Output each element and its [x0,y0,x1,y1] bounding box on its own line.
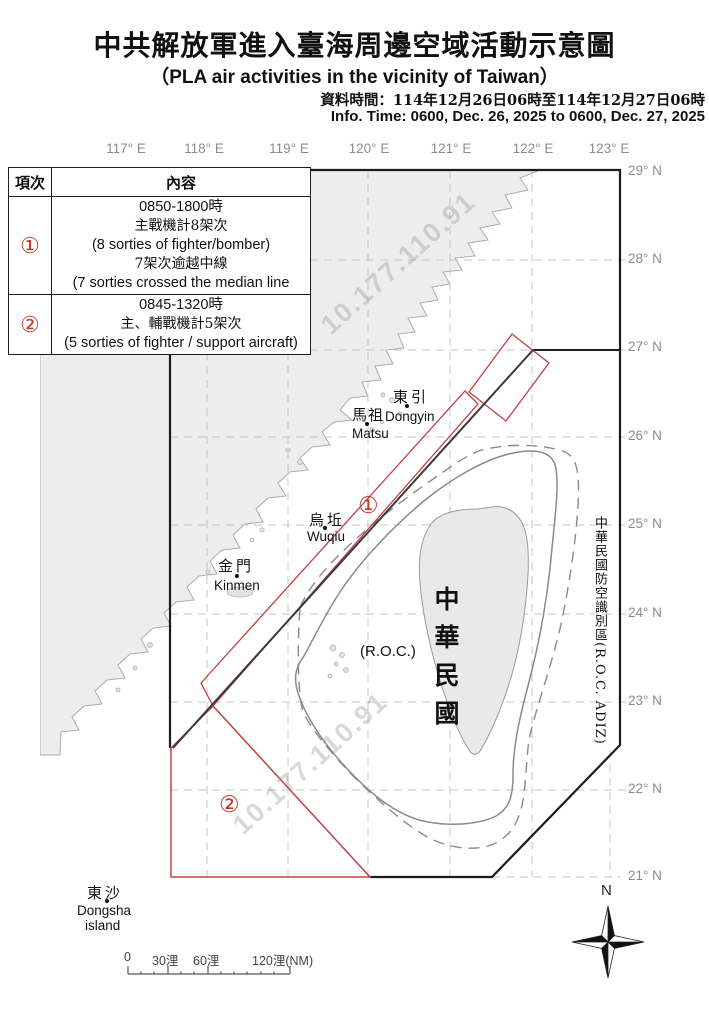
place-label-dongyin-en: Dongyin [385,409,435,424]
lat-label: 23° N [628,693,662,708]
info-time-en: Info. Time: 0600, Dec. 26, 2025 to 0600,… [331,108,705,125]
row-line: (8 sorties of fighter/bomber) [54,236,308,255]
row-line: 主戰機計8架次 [54,217,308,236]
lat-label: 24° N [628,605,662,620]
table-row: ② 0845-1320時 主、輔戰機計5架次 (5 sorties of fig… [9,295,311,355]
col-header-item: 項次 [9,168,52,197]
roc-label-en: (R.O.C.) [360,643,416,660]
zone-2-number: ② [9,295,52,355]
place-label-wuqiu-en: Wuqiu [307,529,345,544]
lon-label: 117° E [100,141,152,156]
lat-label: 21° N [628,868,662,883]
lat-label: 28° N [628,251,662,266]
zone-1-content: 0850-1800時 主戰機計8架次 (8 sorties of fighter… [52,197,311,295]
place-label-dongyin-zh: 東引 [393,386,429,407]
compass-north-label: N [601,882,612,899]
scale-tick-label: 0 [124,950,131,964]
adiz-label: 中華民國防空識別區(R.O.C. ADIZ) [590,516,609,761]
row-line: 0850-1800時 [54,198,308,217]
row-line: 0845-1320時 [54,296,308,315]
zone-2-content: 0845-1320時 主、輔戰機計5架次 (5 sorties of fight… [52,295,311,355]
place-label-matsu-zh: 馬祖 [352,404,384,425]
lon-label: 119° E [263,141,315,156]
place-label-matsu-en: Matsu [352,426,389,441]
zone-2-marker: ② [219,793,240,816]
col-header-content: 內容 [52,168,311,197]
lat-label: 25° N [628,516,662,531]
table-row: ① 0850-1800時 主戰機計8架次 (8 sorties of fight… [9,197,311,295]
info-time-zh: 資料時間：114年12月26日06時至114年12月27日06時 [320,89,705,110]
lon-label: 120° E [343,141,395,156]
lat-label: 29° N [628,163,662,178]
page-subtitle: （PLA air activities in the vicinity of T… [0,62,709,89]
lon-label: 122° E [507,141,559,156]
sortie-table: 項次 內容 ① 0850-1800時 主戰機計8架次 (8 sorties of… [8,167,311,355]
zone-1-marker: ① [358,494,379,517]
page: 10.177.110.91 10.177.110.91 中共解放軍進入臺海周邊空… [0,0,709,1024]
place-label-dongsha-en: Dongsha [77,903,131,918]
lon-label: 118° E [178,141,230,156]
compass-rose [572,906,644,978]
lat-label: 26° N [628,428,662,443]
roc-label-zh: 中華民國 [427,586,463,738]
place-label-dongsha-island: island [85,918,120,933]
row-line: (7 sorties crossed the median line [54,274,308,293]
place-label-wuqiu-zh: 烏坵 [309,509,345,530]
place-label-dongsha-zh: 東沙 [87,882,123,903]
row-line: 主、輔戰機計5架次 [54,315,308,334]
page-title: 中共解放軍進入臺海周邊空域活動示意圖 [0,24,709,64]
lon-label: 121° E [425,141,477,156]
row-line: 7架次逾越中線 [54,255,308,274]
lon-label: 123° E [583,141,635,156]
row-line: (5 sorties of fighter / support aircraft… [54,334,308,353]
scale-tick-label: 30浬 [152,950,178,969]
zone-1-number: ① [9,197,52,295]
place-label-kinmen-en: Kinmen [214,578,260,593]
table-header-row: 項次 內容 [9,168,311,197]
scale-tick-label: 60浬 [193,950,219,969]
place-label-kinmen-zh: 金門 [218,555,254,576]
lat-label: 22° N [628,781,662,796]
scale-tick-label: 120浬(NM) [252,950,313,969]
lat-label: 27° N [628,339,662,354]
